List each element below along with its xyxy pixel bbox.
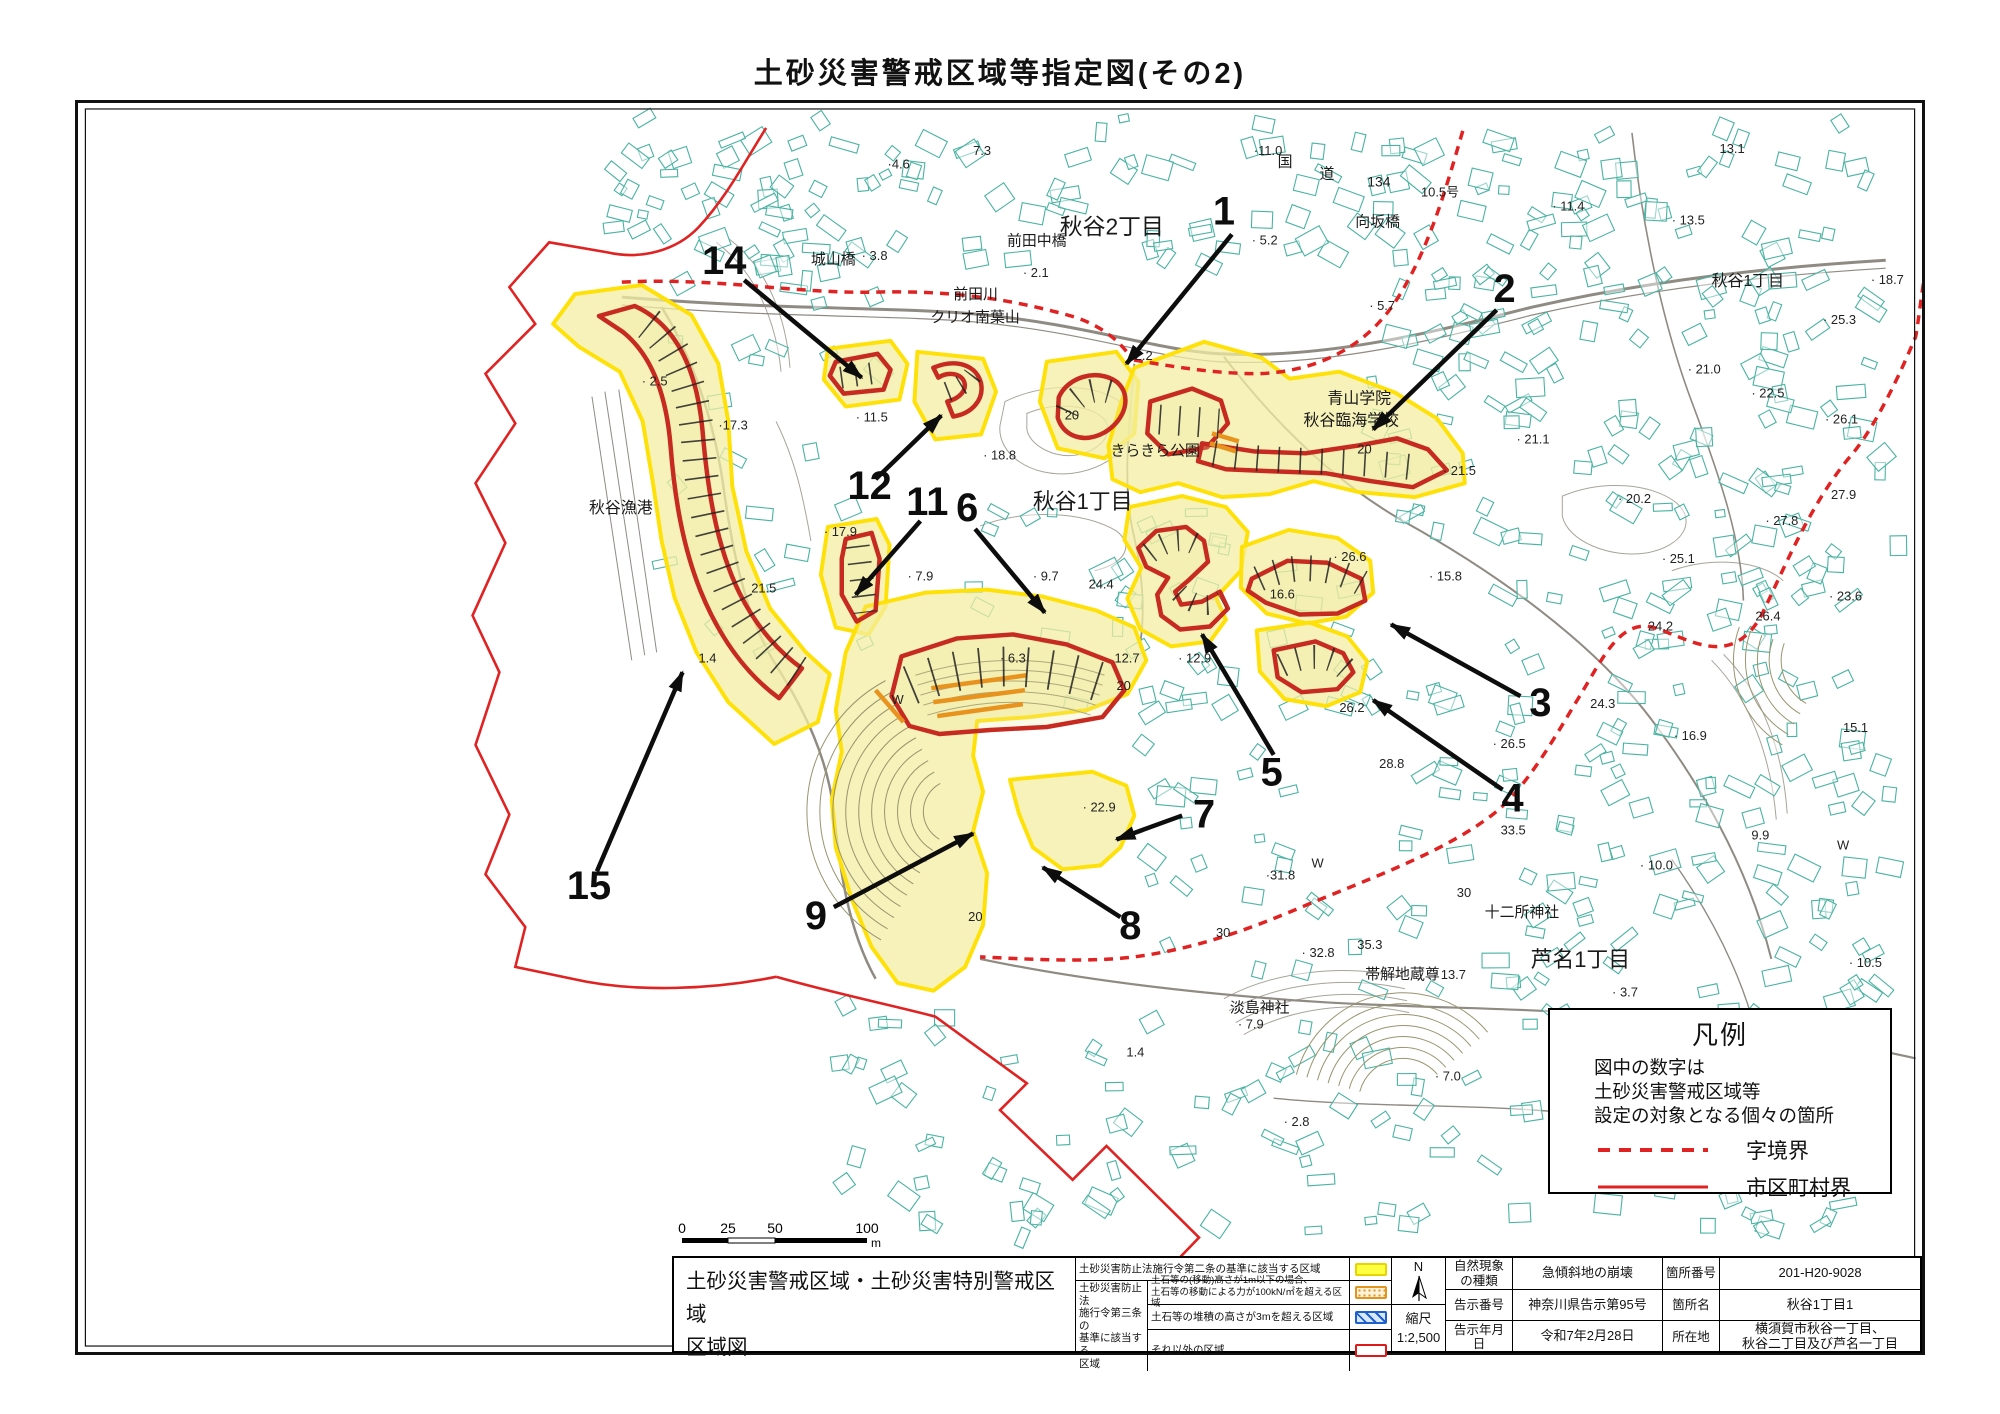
elevation-label: 20 — [1357, 441, 1371, 456]
place-label: 向坂橋 — [1355, 213, 1400, 230]
detail-key: 自然現象 の種類 — [1446, 1258, 1512, 1289]
solid-line-sample — [1594, 1182, 1712, 1192]
place-label: 道 — [1319, 166, 1334, 183]
elevation-label: · 16.9 — [1674, 728, 1707, 743]
zone-number: 8 — [1119, 904, 1141, 948]
elevation-label: 20 — [1065, 407, 1079, 422]
elevation-label: 16.6 — [1270, 587, 1295, 602]
zone-number: 15 — [567, 864, 611, 908]
legend-box: 凡例 図中の数字は 土砂災害警戒区域等 設定の対象となる個々の箇所 字境界 市区… — [1548, 1008, 1892, 1194]
legend-item-municipal-boundary: 市区町村界 — [1594, 1172, 1890, 1202]
map-sheet-title: 土砂災害警戒区域・土砂災害特別警戒区域 区域図 — [674, 1258, 1076, 1351]
place-label: きらきら公園 — [1110, 442, 1199, 459]
elevation-label: 26.2 — [1339, 700, 1364, 715]
elevation-label: · 18.7 — [1871, 272, 1904, 287]
elevation-label: · 26.1 — [1825, 411, 1858, 426]
map-document-page: 土砂災害警戒区域等指定図(その2) — [0, 0, 2000, 1414]
place-label: 帯解地蔵尊 — [1365, 966, 1440, 983]
elevation-label: · 2.5 — [642, 374, 668, 389]
elevation-label: ·11.0 — [1254, 143, 1283, 158]
elevation-label: 27.9 — [1831, 487, 1856, 502]
detail-value: 201-H20-9028 — [1719, 1258, 1920, 1289]
blue-zone-swatch — [1355, 1311, 1387, 1324]
legend-title: 凡例 — [1550, 1015, 1890, 1052]
detail-key: 告示年月日 — [1446, 1320, 1512, 1353]
elevation-label: 30 — [1457, 885, 1471, 900]
elevation-label: 20 — [968, 909, 982, 924]
legend-note: 図中の数字は 土砂災害警戒区域等 設定の対象となる個々の箇所 — [1594, 1056, 1890, 1128]
zone-arrow — [597, 672, 683, 871]
elevation-label: 26.4 — [1755, 609, 1780, 624]
elevation-label: · 5.7 — [1369, 298, 1395, 313]
detail-value: 神奈川県告示第95号 — [1512, 1289, 1662, 1320]
elevation-label: 12.7 — [1114, 650, 1139, 665]
zone-arrow — [1391, 624, 1520, 696]
zone-classification-legend: 土砂災害防止法施行令第二条の基準に該当する区域 土砂災害防止法 施行令第三条の … — [1076, 1258, 1392, 1351]
elevation-label: · 22.9 — [1083, 800, 1116, 815]
scale-unit: m — [871, 1236, 881, 1250]
elevation-label: · 7.9 — [907, 569, 933, 584]
elevation-label: · 10.5 — [1849, 955, 1882, 970]
zone-row2-swatch — [1349, 1281, 1392, 1305]
elevation-label: · 10.0 — [1640, 857, 1673, 872]
north-arrow-icon — [1407, 1273, 1431, 1303]
elevation-label: 24.2 — [1648, 618, 1673, 633]
elevation-label: · 12.9 — [1178, 650, 1211, 665]
scale-tick: 100 — [855, 1220, 879, 1236]
elevation-label: ·31.8 — [1266, 867, 1295, 882]
detail-key: 告示番号 — [1446, 1289, 1512, 1320]
elevation-label: · 7.9 — [1238, 1017, 1264, 1032]
north-arrow: N — [1392, 1258, 1445, 1305]
zone-number: 3 — [1529, 681, 1551, 725]
place-label: 秋谷1丁目 — [1033, 489, 1133, 514]
elevation-label: 21.5 — [751, 581, 776, 596]
elevation-label: · 13.7 — [1433, 967, 1466, 982]
detail-value: 急傾斜地の崩壊 — [1512, 1258, 1662, 1289]
place-label: 秋谷1丁目 — [1712, 272, 1784, 290]
zone-number: 14 — [702, 239, 746, 283]
elevation-label: · 7.0 — [1435, 1068, 1461, 1083]
scale-ratio: 縮尺 1:2,500 — [1392, 1305, 1445, 1351]
elevation-label: 9.9 — [1751, 827, 1769, 842]
zone-row4-swatch — [1349, 1330, 1392, 1371]
elevation-label: ·4.6 — [888, 157, 910, 172]
elevation-label: · 21.1 — [1517, 431, 1550, 446]
elevation-label: · 11.4 — [1552, 198, 1584, 213]
elevation-label: · 9.7 — [1033, 569, 1059, 584]
zone-number: 6 — [956, 486, 978, 530]
place-label: 淡島神社 — [1230, 1000, 1290, 1017]
scale-bar: 0 25 50 100 m — [655, 1220, 900, 1254]
elevation-label: · 23.6 — [1829, 589, 1862, 604]
elevation-label: · 27.8 — [1765, 513, 1798, 528]
elevation-label: 7.3 — [973, 143, 991, 158]
zone-number: 2 — [1494, 267, 1516, 311]
elevation-label: · 6.3 — [1000, 650, 1026, 665]
orange-zone-swatch — [1355, 1286, 1387, 1299]
dashed-line-sample — [1594, 1145, 1712, 1155]
elevation-label: · 3.7 — [1612, 985, 1638, 1000]
elevation-label: · 25.3 — [1823, 312, 1856, 327]
elevation-label: W — [1837, 837, 1850, 852]
elevation-label: 15.1 — [1843, 720, 1868, 735]
place-label: 城山橋 — [811, 251, 856, 268]
elevation-label: · 2.1 — [1023, 265, 1049, 280]
detail-value: 秋谷1丁目1 — [1719, 1289, 1920, 1320]
elevation-label: · 21.0 — [1688, 362, 1721, 377]
elevation-label: · 3.8 — [862, 248, 888, 263]
yellow-zone-swatch — [1355, 1263, 1387, 1276]
legend-item-aza-boundary: 字境界 — [1594, 1135, 1890, 1165]
zone-arrow — [1043, 867, 1121, 917]
zone-row4-desc: それ以外の区域 — [1148, 1330, 1349, 1371]
elevation-label: · 15.8 — [1429, 569, 1462, 584]
detail-value: 横須賀市秋谷一丁目、 秋谷二丁目及び芦名一丁目 — [1719, 1320, 1920, 1353]
zone-number: 1 — [1213, 189, 1235, 233]
elevation-label: · 26.6 — [1333, 549, 1366, 564]
elevation-label: · 18.8 — [983, 447, 1016, 462]
elevation-label: ·17.3 — [718, 417, 747, 432]
elevation-label: 30 — [1216, 925, 1230, 940]
place-label: クリオ南葉山 — [930, 309, 1019, 326]
elevation-label: · 25.1 — [1662, 551, 1695, 566]
place-label: 前田中橋 — [1007, 232, 1067, 249]
elevation-label: 28.8 — [1379, 756, 1404, 771]
elevation-label: W — [892, 692, 905, 707]
zone-row1-swatch — [1349, 1258, 1392, 1281]
elevation-label: · 5.2 — [1252, 232, 1278, 247]
elevation-label: 1.4 — [1126, 1044, 1144, 1059]
elevation-label: 24.3 — [1590, 696, 1615, 711]
elevation-label: · 32.8 — [1302, 945, 1335, 960]
elevation-label: 1.4 — [698, 650, 716, 665]
zone-number: 12 — [847, 464, 891, 508]
zone-row2-desc: 土石等の(移動)高さが1m以下の場合、 土石等の移動による力が100kN/㎡を超… — [1148, 1281, 1349, 1305]
zone-number: 11 — [906, 480, 948, 524]
page-title: 土砂災害警戒区域等指定図(その2) — [0, 50, 2000, 92]
zone-row3-desc: 土石等の堆積の高さが3mを超える区域 — [1148, 1305, 1349, 1330]
elevation-label: 10.5号 — [1421, 185, 1459, 200]
scale-tick: 25 — [720, 1220, 736, 1236]
designation-details: 自然現象 の種類 急傾斜地の崩壊 箇所番号 201-H20-9028 告示番号 … — [1446, 1258, 1920, 1351]
zone-group-label: 土砂災害防止法 施行令第三条の 基準に該当する 区域 — [1076, 1281, 1148, 1371]
elevation-label: · 13.5 — [1672, 212, 1705, 227]
compass-and-scale: N 縮尺 1:2,500 — [1392, 1258, 1446, 1351]
detail-key: 所在地 — [1662, 1320, 1719, 1353]
red-zone-swatch — [1355, 1344, 1387, 1357]
zone-number: 7 — [1193, 793, 1215, 837]
scale-tick: 50 — [767, 1220, 783, 1236]
place-label: 十二所神社 — [1485, 904, 1560, 921]
detail-key: 箇所番号 — [1662, 1258, 1719, 1289]
elevation-label: · 22.5 — [1751, 386, 1784, 401]
place-label: 秋谷漁港 — [589, 499, 653, 517]
elevation-label: · 2.8 — [1284, 1114, 1310, 1129]
elevation-label: 20 — [1116, 678, 1130, 693]
detail-value: 令和7年2月28日 — [1512, 1320, 1662, 1353]
place-label: 青山学院 — [1327, 389, 1391, 408]
zone-number: 9 — [805, 894, 827, 938]
zone-row3-swatch — [1349, 1305, 1392, 1330]
elevation-label: W — [1312, 855, 1325, 870]
place-label: 芦名1丁目 — [1530, 947, 1630, 972]
elevation-label: · 20.2 — [1618, 491, 1651, 506]
elevation-label: · 11.5 — [856, 409, 888, 424]
zone-number: 5 — [1261, 751, 1283, 795]
elevation-label: · 17.9 — [824, 524, 857, 539]
place-label: 前田川 — [953, 286, 998, 303]
elevation-label: 24.4 — [1089, 577, 1114, 592]
detail-key: 箇所名 — [1662, 1289, 1719, 1320]
elevation-label: 35.3 — [1357, 937, 1382, 952]
place-label: 秋谷2丁目 — [1060, 213, 1164, 239]
place-label: 134 — [1367, 174, 1390, 190]
elevation-label: · 26.5 — [1493, 736, 1526, 751]
elevation-label: · 21.5 — [1443, 463, 1476, 478]
elevation-label: 33.5 — [1501, 822, 1526, 837]
zone-number: 4 — [1501, 777, 1523, 821]
elevation-label: 13.1 — [1720, 141, 1745, 156]
scale-tick: 0 — [678, 1220, 686, 1236]
info-table: 土砂災害警戒区域・土砂災害特別警戒区域 区域図 土砂災害防止法施行令第二条の基準… — [672, 1256, 1922, 1353]
